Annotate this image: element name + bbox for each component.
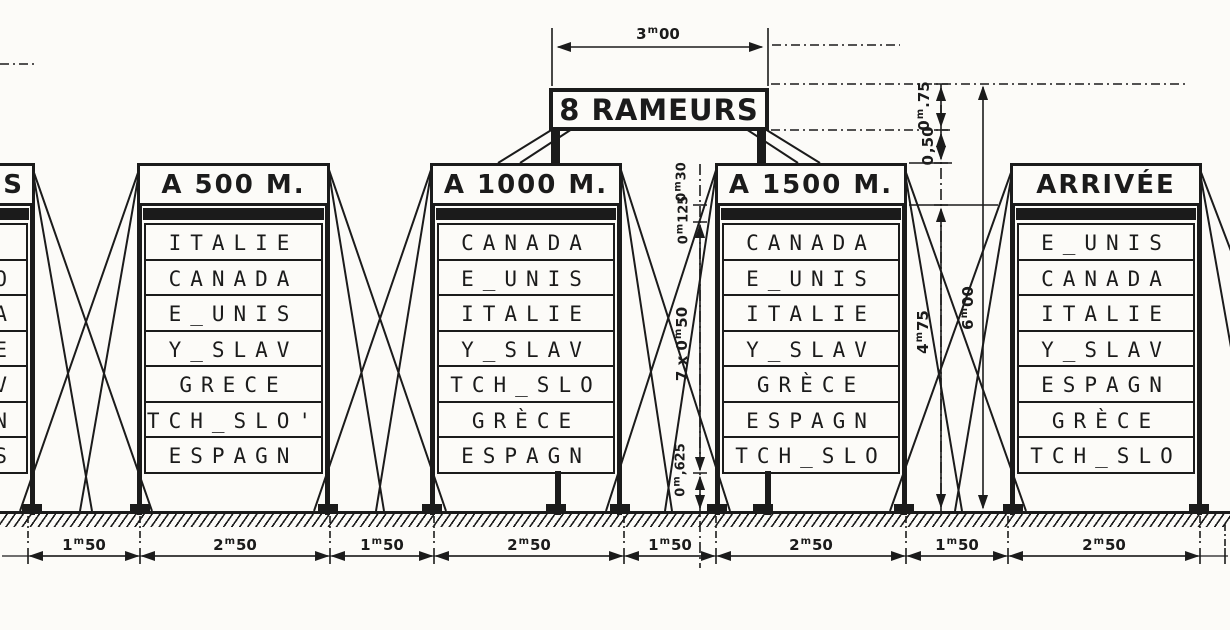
- post-foot: [753, 504, 773, 513]
- dim-6m00: 6m00: [959, 286, 977, 330]
- dim-0m125: 0m125: [674, 196, 691, 245]
- dim-chain-2m50: 2m50: [507, 536, 551, 554]
- post-foot: [1003, 504, 1023, 513]
- score-row: GRÈCE: [437, 401, 615, 439]
- score-row: GRECE: [144, 365, 323, 403]
- board-header: S: [0, 163, 35, 206]
- board-left-partial: S O A E V N S: [0, 163, 35, 515]
- dim-0m625: 0m,625: [671, 443, 688, 497]
- score-row: ITALIE: [437, 294, 615, 332]
- dim-chain-1m50: 1m50: [62, 536, 106, 554]
- score-row: ITALIE: [144, 223, 323, 261]
- score-row: GRÈCE: [722, 365, 900, 403]
- post-foot: [22, 504, 42, 513]
- post-foot: [1189, 504, 1209, 513]
- score-row: CANADA: [1017, 259, 1195, 297]
- dim-chain-2m50: 2m50: [1082, 536, 1126, 554]
- score-row: E: [0, 330, 28, 368]
- score-row: O: [0, 259, 28, 297]
- score-rows: CANADA E_UNIS ITALIE Y_SLAV GRÈCE ESPAGN…: [722, 223, 900, 474]
- score-row: TCH_SLO': [144, 401, 323, 439]
- score-row: E_UNIS: [437, 259, 615, 297]
- dim-chain-1m50: 1m50: [935, 536, 979, 554]
- score-row: N: [0, 401, 28, 439]
- score-row: TCH_SLO: [437, 365, 615, 403]
- score-row: S: [0, 436, 28, 474]
- score-rows: ITALIE CANADA E_UNIS Y_SLAV GRECE TCH_SL…: [144, 223, 323, 474]
- score-row: ITALIE: [1017, 294, 1195, 332]
- score-row: TCH_SLO: [722, 436, 900, 474]
- dim-0m75: 0m.75: [915, 81, 933, 130]
- dim-0-50: 0,50: [919, 126, 937, 165]
- post-foot: [318, 504, 338, 513]
- rowing-scoreboard-technical-drawing: 8 RAMEURS S O A E V N S A 500 M. ITALIE …: [0, 0, 1230, 630]
- score-rows: E_UNIS CANADA ITALIE Y_SLAV ESPAGN GRÈCE…: [1017, 223, 1195, 474]
- score-row: CANADA: [144, 259, 323, 297]
- score-rows: CANADA E_UNIS ITALIE Y_SLAV TCH_SLO GRÈC…: [437, 223, 615, 474]
- ground-hatching: [0, 514, 1230, 527]
- score-row: E_UNIS: [722, 259, 900, 297]
- board-a-500-m: A 500 M. ITALIE CANADA E_UNIS Y_SLAV GRE…: [137, 163, 330, 515]
- board-header: A 500 M.: [137, 163, 330, 206]
- board-rail: [1016, 208, 1196, 220]
- board-rail: [436, 208, 616, 220]
- score-row: Y_SLAV: [722, 330, 900, 368]
- board-arrivee: ARRIVÉE E_UNIS CANADA ITALIE Y_SLAV ESPA…: [1010, 163, 1202, 515]
- sign-8-rameurs: 8 RAMEURS: [549, 88, 769, 131]
- score-row: [0, 223, 28, 261]
- board-rail: [143, 208, 324, 220]
- score-row: Y_SLAV: [1017, 330, 1195, 368]
- board-rail: [0, 208, 29, 220]
- score-row: E_UNIS: [1017, 223, 1195, 261]
- board-a-1000-m: A 1000 M. CANADA E_UNIS ITALIE Y_SLAV TC…: [430, 163, 622, 515]
- post-foot: [707, 504, 727, 513]
- score-row: Y_SLAV: [144, 330, 323, 368]
- score-row: TCH_SLO: [1017, 436, 1195, 474]
- board-header: ARRIVÉE: [1010, 163, 1202, 206]
- sign-label: 8 RAMEURS: [559, 93, 758, 127]
- board-header: A 1500 M.: [715, 163, 907, 206]
- board-a-1500-m: A 1500 M. CANADA E_UNIS ITALIE Y_SLAV GR…: [715, 163, 907, 515]
- score-row: ESPAGN: [1017, 365, 1195, 403]
- score-row: GRÈCE: [1017, 401, 1195, 439]
- dim-chain-2m50: 2m50: [213, 536, 257, 554]
- dim-sign-width: 3m00: [636, 25, 680, 43]
- score-row: ESPAGN: [722, 401, 900, 439]
- score-row: ITALIE: [722, 294, 900, 332]
- post-foot: [546, 504, 566, 513]
- dim-7x0m50: 7 x 0m50: [673, 307, 691, 381]
- post-foot: [894, 504, 914, 513]
- score-row: Y_SLAV: [437, 330, 615, 368]
- score-row: CANADA: [722, 223, 900, 261]
- score-row: CANADA: [437, 223, 615, 261]
- dim-chain-1m50: 1m50: [648, 536, 692, 554]
- dim-chain-2m50: 2m50: [789, 536, 833, 554]
- score-row: E_UNIS: [144, 294, 323, 332]
- score-row: A: [0, 294, 28, 332]
- score-row: V: [0, 365, 28, 403]
- post-foot: [422, 504, 442, 513]
- post-foot: [130, 504, 150, 513]
- score-row: ESPAGN: [437, 436, 615, 474]
- post-foot: [610, 504, 630, 513]
- dim-chain-1m50: 1m50: [360, 536, 404, 554]
- score-rows: O A E V N S: [0, 223, 28, 474]
- board-rail: [721, 208, 901, 220]
- board-header: A 1000 M.: [430, 163, 622, 206]
- score-row: ESPAGN: [144, 436, 323, 474]
- dim-4m75: 4m75: [914, 310, 932, 354]
